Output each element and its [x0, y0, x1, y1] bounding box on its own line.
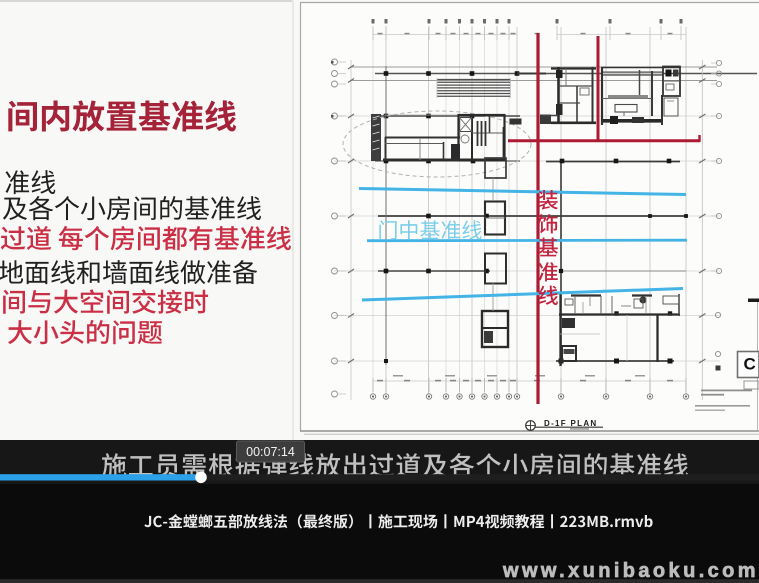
svg-text:D-1F PLAN: D-1F PLAN — [544, 419, 597, 428]
svg-text:www.xunibaoku.com: www.xunibaoku.com — [502, 560, 759, 582]
svg-text:C: C — [744, 355, 756, 374]
svg-text:00:07:14: 00:07:14 — [246, 445, 295, 459]
